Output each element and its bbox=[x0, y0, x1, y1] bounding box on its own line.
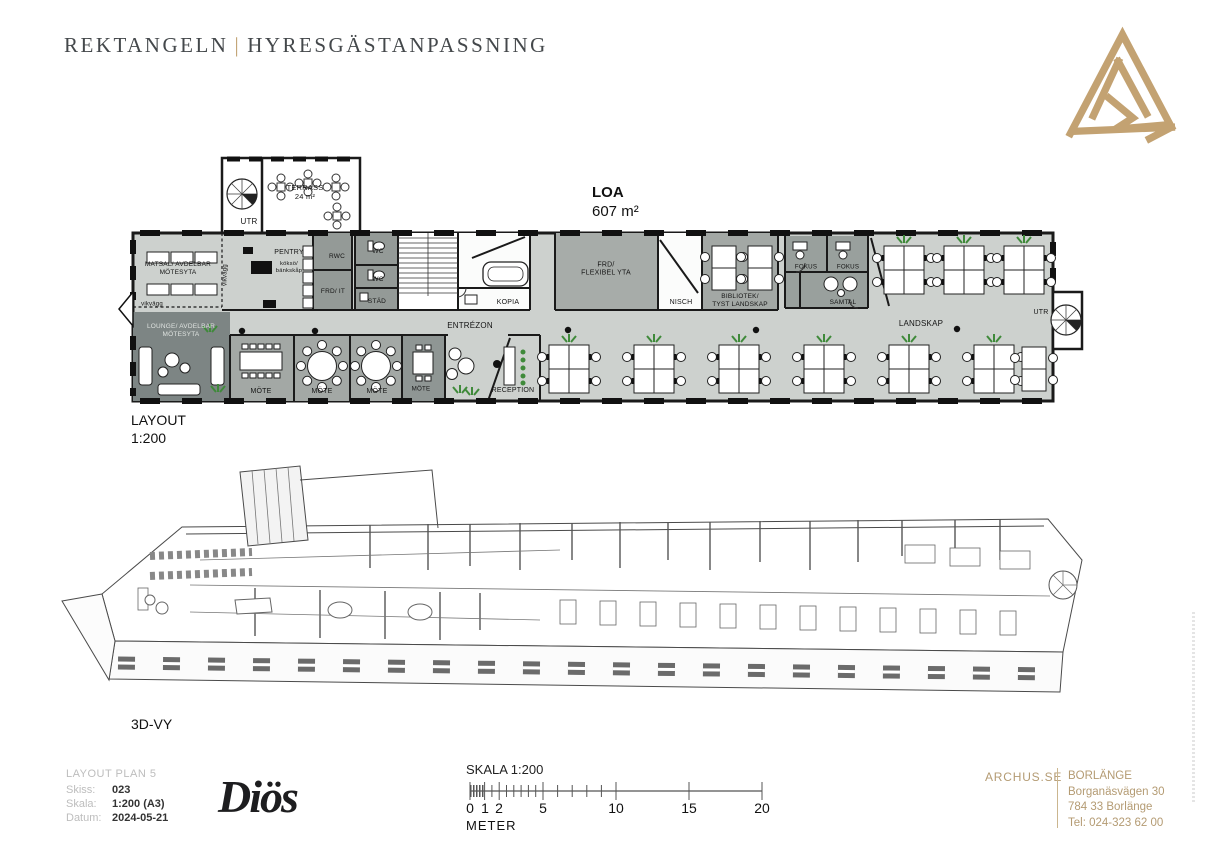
ruler-tick-label: 0 bbox=[466, 800, 474, 816]
doc-row-label: Datum: bbox=[66, 811, 112, 825]
contact-divider bbox=[1057, 768, 1058, 828]
room-label-fokus-2: FOKUS bbox=[837, 263, 859, 270]
room-label-lounge: LOUNGE/ AVDELBAR MÖTESYTA bbox=[147, 323, 215, 339]
room-label-nisch: NISCH bbox=[670, 299, 693, 307]
layout-caption: LAYOUT 1:200 bbox=[131, 412, 186, 447]
view3d-caption: 3D-VY bbox=[131, 716, 172, 734]
room-label-wc-2: WC bbox=[372, 276, 383, 284]
contact-street: Borganäsvägen 30 bbox=[1068, 785, 1165, 801]
doc-title: LAYOUT PLAN 5 bbox=[66, 768, 168, 780]
plan-sheet: REKTANGELN|HYRESGÄSTANPASSNING LOA 607 m… bbox=[0, 0, 1220, 863]
room-label-mote-1: MÖTE bbox=[250, 388, 271, 396]
doc-row-value: 2024-05-21 bbox=[112, 811, 168, 825]
ruler-tick-label: 15 bbox=[681, 800, 697, 816]
room-label-landskap: LANDSKAP bbox=[899, 319, 943, 329]
ruler-unit-label: METER bbox=[466, 818, 517, 833]
doc-row: Skala:1:200 (A3) bbox=[66, 797, 168, 811]
plan-3d-view bbox=[62, 466, 1082, 692]
room-label-vikvagg-vertical: vikvägg bbox=[222, 264, 229, 286]
room-label-stad: STÄD bbox=[368, 298, 386, 306]
room-label-wc-1: WC bbox=[372, 248, 383, 256]
room-label-pentry-sub: köksö/ bänkskåp bbox=[276, 261, 302, 275]
contact-postal: 784 33 Borlänge bbox=[1068, 800, 1165, 816]
room-label-mote-2: MÖTE bbox=[311, 388, 332, 396]
archus-site-link[interactable]: ARCHUS.SE bbox=[985, 769, 1062, 785]
vertical-fine-print bbox=[1192, 612, 1195, 802]
room-label-utr-top: UTR bbox=[240, 217, 257, 227]
contact-office: BORLÄNGE bbox=[1068, 769, 1165, 785]
room-label-samtal: SAMTAL bbox=[830, 299, 857, 307]
doc-row: Skiss:023 bbox=[66, 783, 168, 797]
doc-row-label: Skiss: bbox=[66, 783, 112, 797]
ruler-tick-label: 5 bbox=[539, 800, 547, 816]
room-label-frd-it: FRD/ IT bbox=[321, 288, 345, 296]
ruler-tick-label: 1 bbox=[481, 800, 489, 816]
doc-row-label: Skala: bbox=[66, 797, 112, 811]
dios-logo: Diös bbox=[218, 770, 297, 823]
room-label-terrass: TERRASS 24 m² bbox=[287, 183, 324, 201]
ruler-tick-label: 2 bbox=[495, 800, 503, 816]
room-label-matsal: MATSAL/ AVDELBAR MÖTESYTA bbox=[145, 261, 211, 277]
doc-row-value: 1:200 (A3) bbox=[112, 797, 168, 811]
ruler-tick-label: 10 bbox=[608, 800, 624, 816]
room-label-frd-flexibel: FRD/ FLEXIBEL YTA bbox=[581, 262, 631, 279]
doc-row: Datum:2024-05-21 bbox=[66, 811, 168, 825]
room-label-rwc: RWC bbox=[329, 253, 345, 261]
document-info-block: LAYOUT PLAN 5 Skiss:023 Skala:1:200 (A3)… bbox=[66, 768, 168, 825]
room-label-utr-right: UTR bbox=[1034, 309, 1049, 317]
room-label-entrezon: ENTRÉZON bbox=[447, 321, 493, 331]
room-label-reception: RECEPTION bbox=[492, 387, 535, 395]
doc-row-value: 023 bbox=[112, 783, 168, 797]
ruler-tick-label: 20 bbox=[754, 800, 770, 816]
room-label-pentry: PENTRY bbox=[274, 249, 303, 257]
scale-bar-title: SKALA 1:200 bbox=[466, 762, 543, 777]
contact-phone: Tel: 024-323 62 00 bbox=[1068, 816, 1165, 832]
plan-2d bbox=[119, 158, 1082, 401]
contact-address-block: BORLÄNGE Borganäsvägen 30 784 33 Borläng… bbox=[1068, 769, 1165, 831]
room-label-mote-3: MÖTE bbox=[366, 388, 387, 396]
room-label-vikvagg-horizontal: vikvägg bbox=[141, 301, 163, 308]
room-label-fokus-1: FOKUS bbox=[795, 263, 817, 270]
scale-bar-ruler bbox=[466, 780, 766, 802]
entrance-arrow-icon bbox=[119, 292, 133, 326]
room-label-kopia: KOPIA bbox=[497, 299, 519, 307]
room-label-mote-4: MÖTE bbox=[412, 385, 431, 392]
room-label-bibliotek: BIBLIOTEK/ TYST LANDSKAP bbox=[712, 293, 768, 309]
